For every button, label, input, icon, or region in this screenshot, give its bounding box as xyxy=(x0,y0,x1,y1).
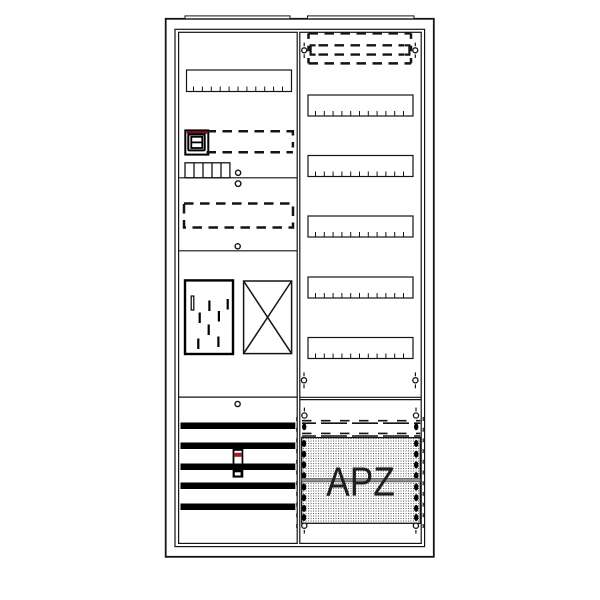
svg-text:APZ: APZ xyxy=(326,459,395,505)
